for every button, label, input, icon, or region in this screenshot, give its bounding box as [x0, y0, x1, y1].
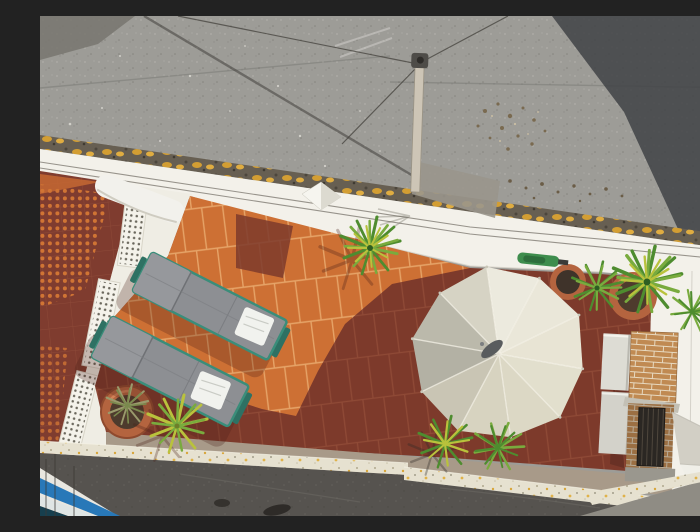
barbecue: [598, 331, 680, 483]
barbecue-firebox: [637, 408, 665, 467]
rooftop-terrace-photo: [40, 16, 700, 516]
barbecue-chimney-bricks: [629, 331, 678, 403]
